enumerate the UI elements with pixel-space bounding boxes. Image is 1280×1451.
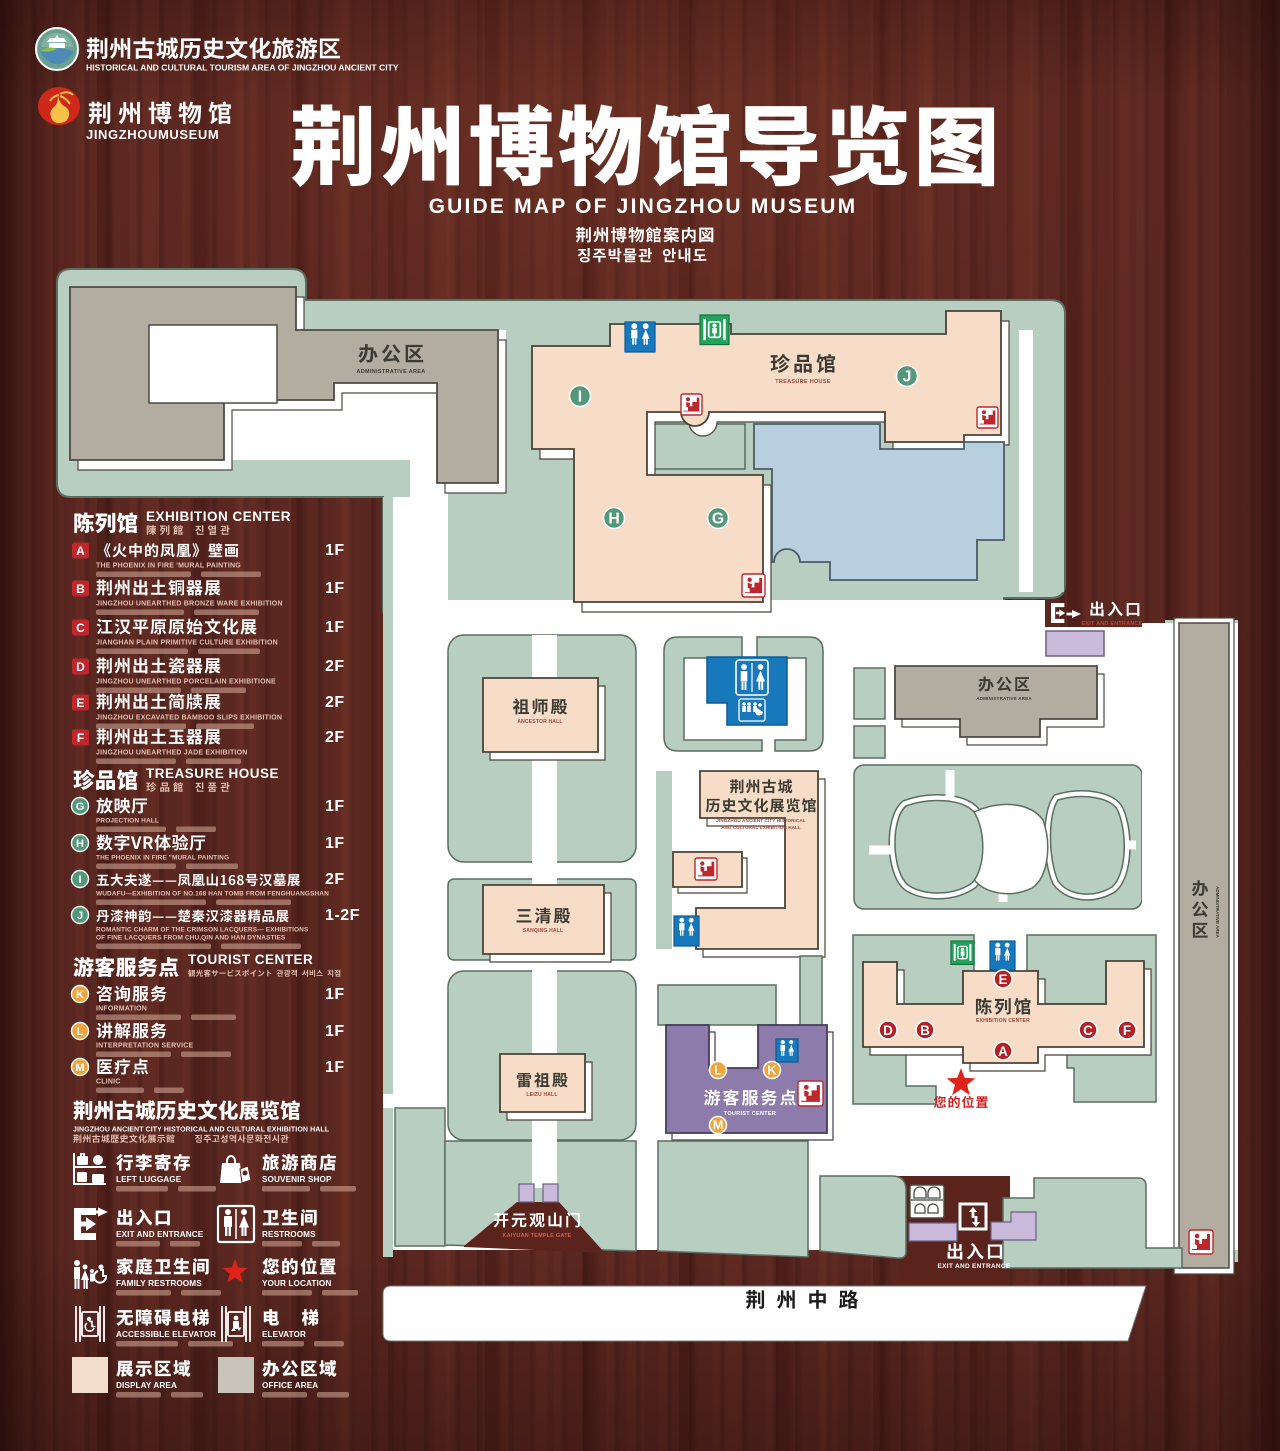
svg-text:2F: 2F bbox=[325, 658, 345, 675]
svg-text:JINGZHOU UNEARTHED PORCELAIN E: JINGZHOU UNEARTHED PORCELAIN EXHIBITIONE bbox=[96, 679, 276, 686]
svg-text:KAIYUAN TEMPLE GATE: KAIYUAN TEMPLE GATE bbox=[502, 1233, 571, 1239]
svg-text:ROMANTIC CHARM OF THE CRIMSON: ROMANTIC CHARM OF THE CRIMSON LACQUERS— … bbox=[96, 927, 309, 934]
svg-text:DISPLAY AREA: DISPLAY AREA bbox=[116, 1381, 177, 1390]
svg-text:OFFICE AREA: OFFICE AREA bbox=[262, 1381, 318, 1390]
svg-text:FAMILY RESTROOMS: FAMILY RESTROOMS bbox=[116, 1279, 202, 1288]
svg-text:B: B bbox=[76, 582, 85, 596]
svg-text:1F: 1F bbox=[325, 1059, 345, 1076]
svg-text:GUIDE MAP OF JINGZHOU MUSEUM: GUIDE MAP OF JINGZHOU MUSEUM bbox=[429, 195, 858, 218]
svg-text:EXHIBITION CENTER: EXHIBITION CENTER bbox=[146, 509, 291, 524]
svg-text:INFORMATION: INFORMATION bbox=[96, 1006, 147, 1013]
svg-text:1F: 1F bbox=[325, 835, 345, 852]
svg-text:K: K bbox=[767, 1063, 777, 1078]
svg-text:JINGZHOU EXCAVATED BAMBOO SLIP: JINGZHOU EXCAVATED BAMBOO SLIPS EXHIBITI… bbox=[96, 715, 282, 722]
svg-text:EXIT AND ENTRANCE: EXIT AND ENTRANCE bbox=[116, 1230, 204, 1239]
svg-text:HISTORICAL AND CULTURAL TOURIS: HISTORICAL AND CULTURAL TOURISM AREA OF … bbox=[86, 63, 399, 73]
svg-text:F: F bbox=[1123, 1023, 1131, 1038]
svg-text:WUDAFU—EXHIBITION OF NO.168 HA: WUDAFU—EXHIBITION OF NO.168 HAN TOMB FRO… bbox=[96, 891, 329, 898]
svg-text:YOUR LOCATION: YOUR LOCATION bbox=[262, 1279, 331, 1288]
svg-text:D: D bbox=[883, 1023, 893, 1038]
svg-text:L: L bbox=[714, 1063, 722, 1078]
svg-text:ADMINISTRATIVE AREA: ADMINISTRATIVE AREA bbox=[357, 369, 426, 375]
svg-text:1F: 1F bbox=[325, 580, 345, 597]
svg-text:C: C bbox=[76, 621, 85, 635]
svg-text:THE PHOENIX IN FIRE "MURAL PAI: THE PHOENIX IN FIRE "MURAL PAINTING bbox=[96, 855, 229, 862]
svg-text:A: A bbox=[998, 1044, 1008, 1059]
svg-text:LEIZU HALL: LEIZU HALL bbox=[526, 1092, 557, 1098]
svg-text:TREASURE HOUSE: TREASURE HOUSE bbox=[146, 766, 279, 781]
svg-text:J: J bbox=[77, 910, 83, 922]
svg-text:1F: 1F bbox=[325, 986, 345, 1003]
svg-text:1F: 1F bbox=[325, 619, 345, 636]
svg-text:I: I bbox=[78, 874, 81, 886]
svg-text:B: B bbox=[920, 1023, 930, 1038]
svg-text:TOURIST CENTER: TOURIST CENTER bbox=[188, 952, 313, 967]
svg-text:LEFT LUGGAGE: LEFT LUGGAGE bbox=[116, 1175, 182, 1184]
svg-text:J: J bbox=[903, 369, 912, 386]
svg-text:ANCESTOR HALL: ANCESTOR HALL bbox=[517, 719, 562, 725]
svg-text:PROJECTION HALL: PROJECTION HALL bbox=[96, 818, 159, 825]
svg-text:AND CULTURAL EXHIBITION HALL: AND CULTURAL EXHIBITION HALL bbox=[721, 825, 801, 830]
svg-text:EXIT AND ENTRANCE: EXIT AND ENTRANCE bbox=[937, 1263, 1010, 1270]
svg-text:EXIT AND ENTRANCE: EXIT AND ENTRANCE bbox=[1082, 621, 1143, 627]
svg-text:JIANGHAN PLAIN PRIMITIVE CULTU: JIANGHAN PLAIN PRIMITIVE CULTURE EXHIBIT… bbox=[96, 640, 278, 647]
svg-text:ADMINISTRATIVE AREA: ADMINISTRATIVE AREA bbox=[1215, 886, 1220, 939]
svg-text:H: H bbox=[76, 838, 84, 850]
svg-text:2F: 2F bbox=[325, 694, 345, 711]
svg-text:2F: 2F bbox=[325, 871, 345, 888]
svg-text:EXHIBITION CENTER: EXHIBITION CENTER bbox=[976, 1018, 1030, 1024]
svg-text:RESTROOMS: RESTROOMS bbox=[262, 1230, 316, 1239]
svg-text:D: D bbox=[76, 660, 85, 674]
svg-text:SOUVENIR SHOP: SOUVENIR SHOP bbox=[262, 1175, 332, 1184]
svg-text:1F: 1F bbox=[325, 542, 345, 559]
svg-text:E: E bbox=[998, 972, 1007, 987]
svg-text:1F: 1F bbox=[325, 1023, 345, 1040]
svg-text:F: F bbox=[77, 731, 84, 745]
svg-text:G: G bbox=[712, 511, 724, 528]
svg-text:A: A bbox=[76, 544, 85, 558]
svg-text:1F: 1F bbox=[325, 798, 345, 815]
svg-text:SANQING HALL: SANQING HALL bbox=[523, 928, 563, 934]
svg-text:THE PHOENIX IN FIRE 'MURAL PAI: THE PHOENIX IN FIRE 'MURAL PAINTING bbox=[96, 563, 241, 570]
svg-text:H: H bbox=[608, 511, 619, 528]
svg-text:JINGZHOU ANCIENT CITY HISTORIC: JINGZHOU ANCIENT CITY HISTORICAL AND CUL… bbox=[73, 1127, 330, 1134]
svg-text:OF FINE LACQUERS FROM CHU,QIN: OF FINE LACQUERS FROM CHU,QIN AND HAN DY… bbox=[96, 935, 286, 942]
svg-text:JINGZHOU ANCIENT CITY HISTORIC: JINGZHOU ANCIENT CITY HISTORICAL bbox=[716, 818, 805, 823]
svg-text:E: E bbox=[76, 696, 84, 710]
svg-text:1-2F: 1-2F bbox=[325, 907, 360, 924]
svg-text:I: I bbox=[578, 389, 582, 406]
svg-text:C: C bbox=[1083, 1023, 1093, 1038]
svg-text:M: M bbox=[713, 1118, 724, 1133]
svg-text:2F: 2F bbox=[325, 729, 345, 746]
svg-text:ELEVATOR: ELEVATOR bbox=[262, 1330, 306, 1339]
svg-text:L: L bbox=[77, 1026, 84, 1038]
svg-text:JINGZHOU UNEARTHED JADE EXHIBI: JINGZHOU UNEARTHED JADE EXHIBITION bbox=[96, 750, 247, 757]
svg-text:CLINIC: CLINIC bbox=[96, 1079, 121, 1086]
svg-text:JINGZHOU UNEARTHED BRONZE WARE: JINGZHOU UNEARTHED BRONZE WARE EXHIBITIO… bbox=[96, 601, 283, 608]
svg-text:JINGZHOUMUSEUM: JINGZHOUMUSEUM bbox=[86, 127, 219, 142]
svg-text:M: M bbox=[75, 1062, 84, 1074]
svg-text:ACCESSIBLE ELEVATOR: ACCESSIBLE ELEVATOR bbox=[116, 1330, 216, 1339]
svg-text:G: G bbox=[76, 801, 85, 813]
svg-text:TOURIST CENTER: TOURIST CENTER bbox=[724, 1111, 776, 1117]
svg-text:INTERPRETATION SERVICE: INTERPRETATION SERVICE bbox=[96, 1043, 193, 1050]
svg-text:ADMINISTRATIVE AREA: ADMINISTRATIVE AREA bbox=[976, 696, 1032, 701]
svg-text:TREASURE HOUSE: TREASURE HOUSE bbox=[775, 379, 831, 385]
svg-text:K: K bbox=[76, 989, 84, 1001]
